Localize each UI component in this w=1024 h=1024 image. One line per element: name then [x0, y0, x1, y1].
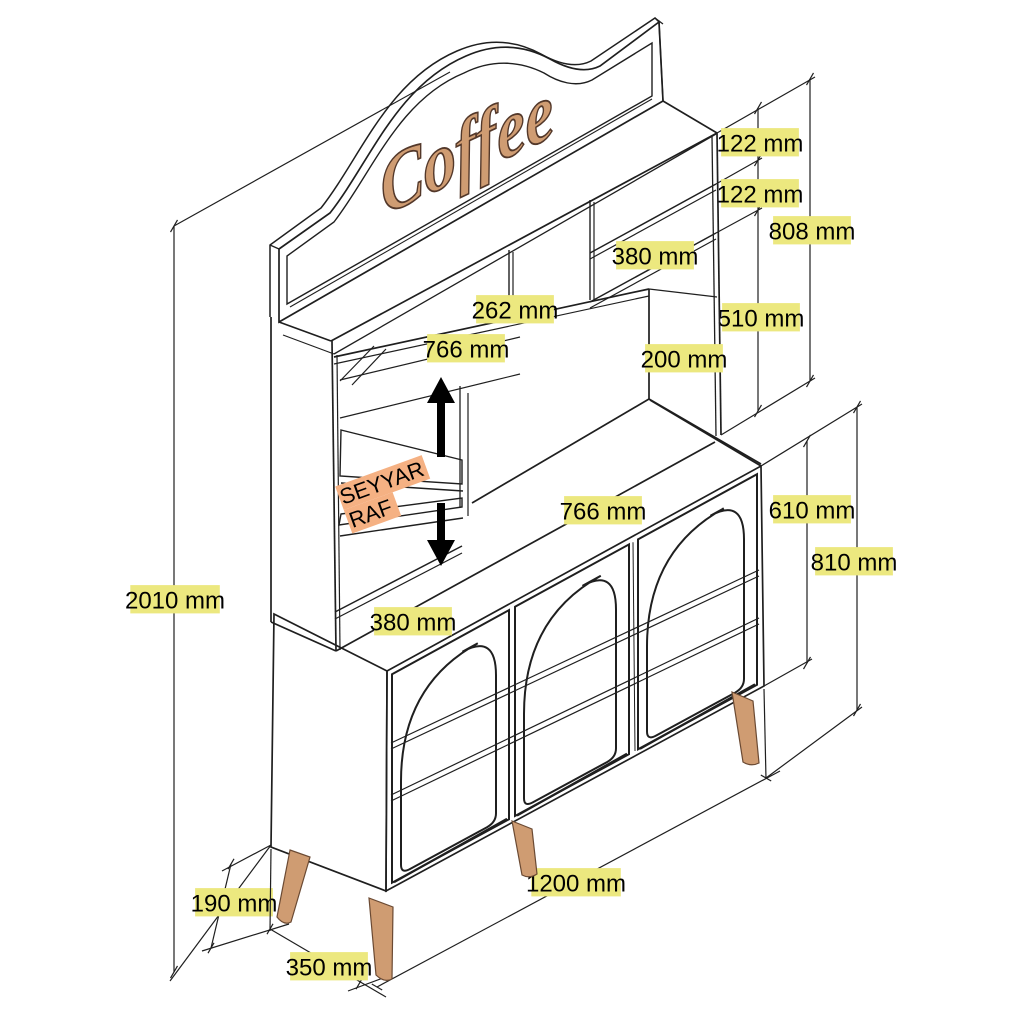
- svg-text:2010 mm: 2010 mm: [125, 588, 225, 615]
- svg-text:766 mm: 766 mm: [560, 499, 647, 526]
- svg-text:350 mm: 350 mm: [286, 955, 373, 982]
- svg-text:190 mm: 190 mm: [191, 891, 278, 918]
- svg-text:808 mm: 808 mm: [769, 219, 856, 246]
- svg-text:766 mm: 766 mm: [423, 337, 510, 364]
- svg-text:262 mm: 262 mm: [472, 298, 559, 325]
- svg-text:200 mm: 200 mm: [641, 347, 728, 374]
- svg-text:122 mm: 122 mm: [717, 182, 804, 209]
- svg-text:510 mm: 510 mm: [718, 306, 805, 333]
- svg-text:380 mm: 380 mm: [370, 610, 457, 637]
- svg-text:122 mm: 122 mm: [717, 131, 804, 158]
- svg-text:1200 mm: 1200 mm: [526, 871, 626, 898]
- svg-text:380 mm: 380 mm: [612, 244, 699, 271]
- svg-text:810 mm: 810 mm: [811, 550, 898, 577]
- svg-text:610 mm: 610 mm: [769, 498, 856, 525]
